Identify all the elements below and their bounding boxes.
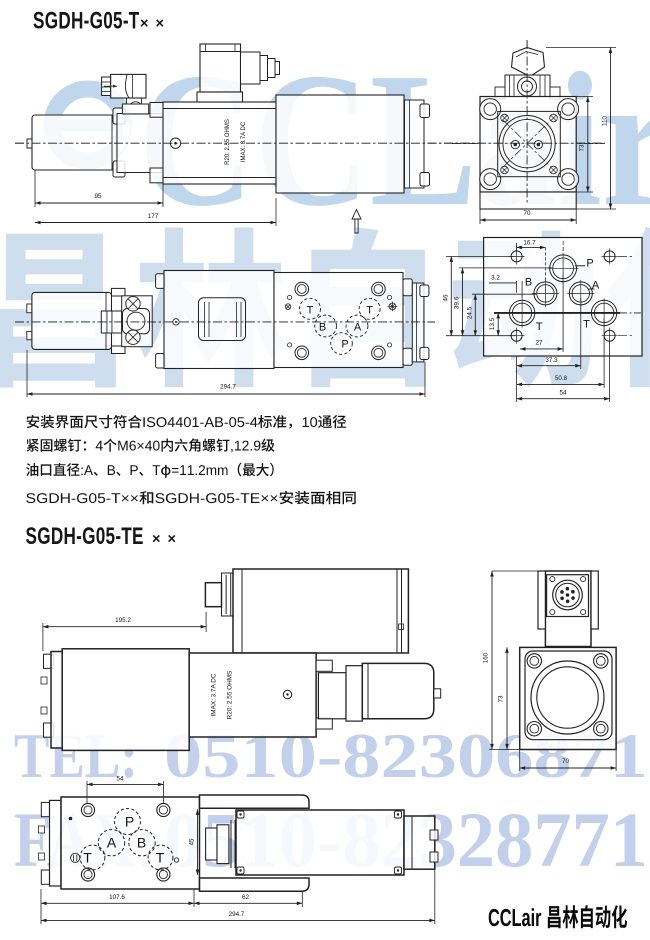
svg-text:195.2: 195.2 bbox=[115, 617, 131, 624]
svg-text:39.6: 39.6 bbox=[454, 296, 461, 309]
svg-text:IMAX: 3.7A DC: IMAX: 3.7A DC bbox=[241, 121, 247, 162]
svg-text:45: 45 bbox=[190, 838, 196, 845]
svg-text:P: P bbox=[586, 258, 593, 270]
svg-text:× ×: × × bbox=[152, 532, 177, 548]
svg-text:A: A bbox=[592, 280, 600, 292]
svg-text:160: 160 bbox=[483, 652, 490, 663]
svg-text:110: 110 bbox=[602, 115, 609, 126]
svg-text:54: 54 bbox=[559, 390, 567, 397]
svg-text:SGDH-G05-TE: SGDH-G05-TE bbox=[26, 523, 144, 550]
svg-text:16.7: 16.7 bbox=[523, 240, 536, 247]
svg-text:62: 62 bbox=[242, 894, 250, 901]
svg-text:73: 73 bbox=[498, 695, 505, 703]
svg-text:R20: 2.55 OHMS: R20: 2.55 OHMS bbox=[227, 671, 234, 720]
svg-text:294.7: 294.7 bbox=[220, 384, 236, 391]
svg-text:294.7: 294.7 bbox=[229, 911, 245, 918]
svg-text:A: A bbox=[107, 835, 117, 851]
svg-text:R20: 2.55 OHMS: R20: 2.55 OHMS bbox=[225, 119, 231, 165]
svg-text:SGDH-G05-T: SGDH-G05-T bbox=[33, 8, 140, 35]
svg-text:A: A bbox=[354, 321, 362, 333]
svg-text:70: 70 bbox=[562, 758, 570, 765]
svg-text:13.5: 13.5 bbox=[489, 317, 496, 330]
svg-text:T: T bbox=[83, 849, 92, 865]
svg-text:P: P bbox=[125, 813, 134, 829]
svg-text:95: 95 bbox=[94, 193, 102, 200]
svg-text:177: 177 bbox=[148, 213, 159, 220]
svg-text:50.8: 50.8 bbox=[555, 375, 568, 382]
svg-text:T: T bbox=[536, 321, 543, 333]
svg-text:107.6: 107.6 bbox=[109, 894, 125, 901]
svg-text:× ×: × × bbox=[140, 16, 165, 32]
svg-text:T: T bbox=[156, 849, 165, 865]
svg-text:P: P bbox=[341, 339, 348, 351]
svg-text:B: B bbox=[525, 277, 532, 289]
svg-text:T: T bbox=[583, 319, 590, 331]
svg-text:46: 46 bbox=[442, 294, 449, 302]
svg-text:IMAX: 3.7A DC: IMAX: 3.7A DC bbox=[211, 673, 218, 716]
svg-text:T: T bbox=[366, 304, 373, 316]
svg-text:B: B bbox=[137, 835, 146, 851]
svg-text:37.3: 37.3 bbox=[545, 357, 558, 364]
svg-text:73: 73 bbox=[579, 144, 586, 152]
svg-text:70: 70 bbox=[523, 210, 531, 217]
svg-text:27: 27 bbox=[535, 340, 543, 347]
svg-text:24.5: 24.5 bbox=[466, 306, 473, 319]
svg-text:3.2: 3.2 bbox=[491, 275, 500, 282]
svg-text:54: 54 bbox=[116, 776, 124, 783]
svg-text:B: B bbox=[319, 321, 326, 333]
svg-text:T: T bbox=[307, 304, 314, 316]
